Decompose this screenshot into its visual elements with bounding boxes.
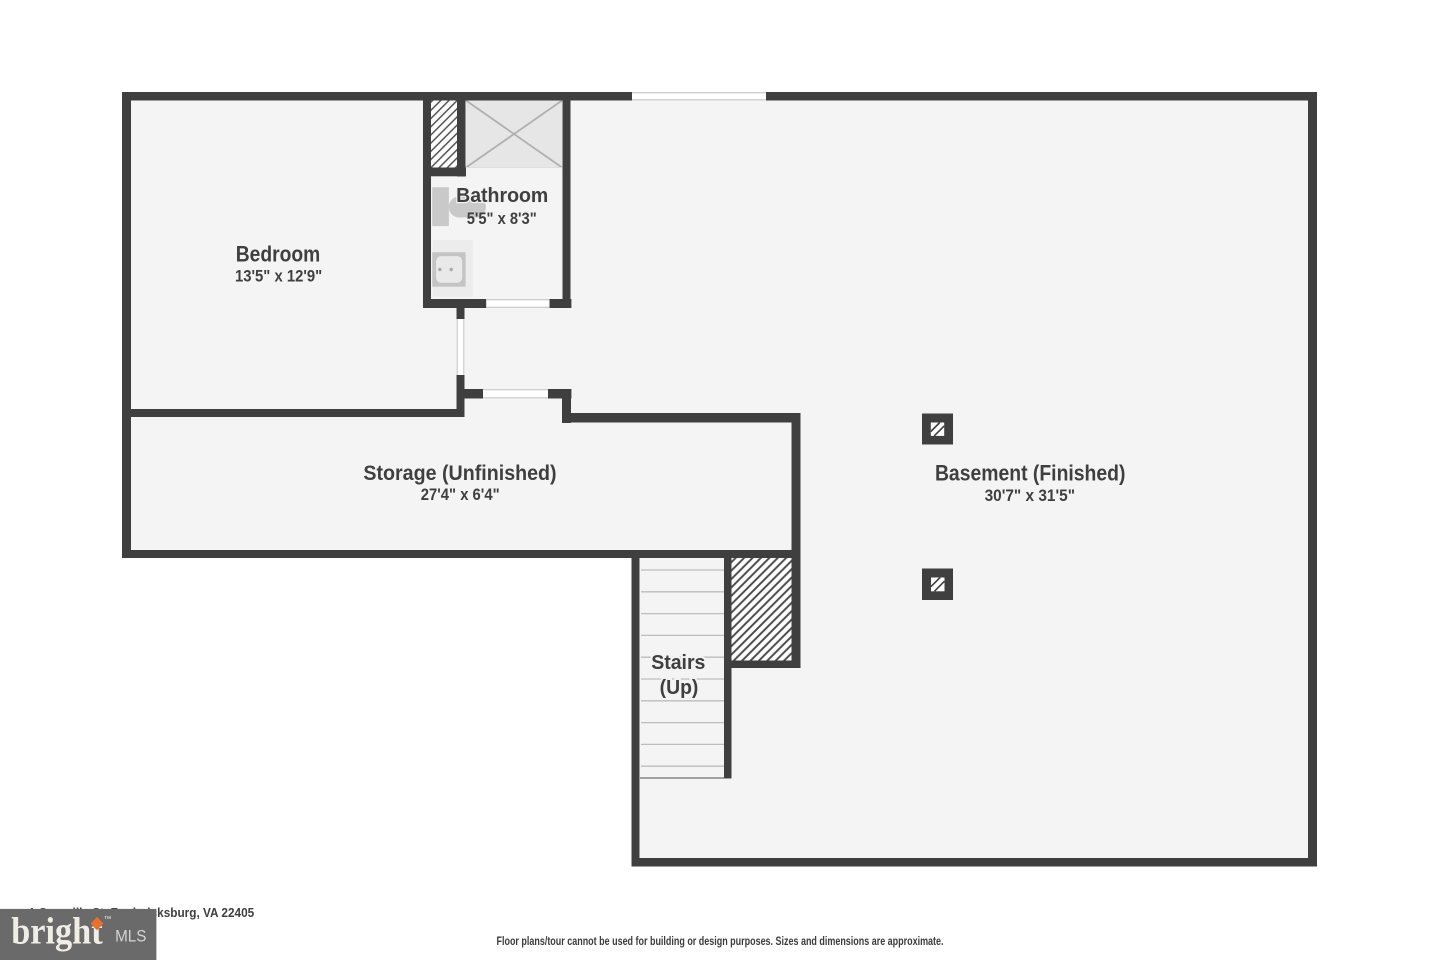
svg-text:Basement (Finished): Basement (Finished) <box>935 460 1126 485</box>
svg-text:Bedroom: Bedroom <box>236 242 321 267</box>
svg-text:13'5" x 12'9": 13'5" x 12'9" <box>235 268 322 286</box>
svg-text:MLS: MLS <box>115 928 146 946</box>
svg-text:Storage (Unfinished): Storage (Unfinished) <box>363 461 556 485</box>
svg-text:Floor plans/tour cannot be use: Floor plans/tour cannot be used for buil… <box>497 936 944 948</box>
svg-text:Stairs: Stairs <box>651 652 705 674</box>
svg-text:™: ™ <box>104 915 112 924</box>
svg-text:bright: bright <box>11 910 103 952</box>
svg-text:Bathroom: Bathroom <box>456 185 548 207</box>
svg-text:30'7" x 31'5": 30'7" x 31'5" <box>985 487 1075 505</box>
svg-text:(Up): (Up) <box>660 677 699 699</box>
svg-text:27'4" x 6'4": 27'4" x 6'4" <box>421 486 500 504</box>
svg-text:5'5" x 8'3": 5'5" x 8'3" <box>467 210 537 228</box>
